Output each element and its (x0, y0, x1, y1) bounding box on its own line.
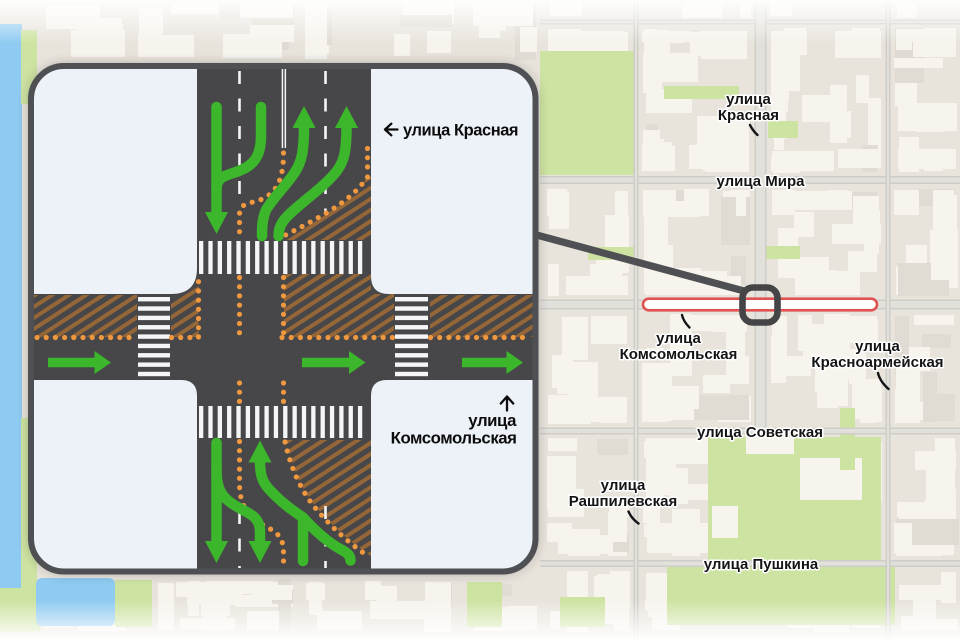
svg-text:улица: улица (726, 91, 771, 108)
svg-text:улица: улица (855, 338, 900, 355)
svg-text:улица Мира: улица Мира (716, 173, 805, 190)
svg-text:улица Пушкина: улица Пушкина (704, 556, 819, 573)
svg-text:улица: улица (601, 477, 646, 494)
svg-text:улица Советская: улица Советская (697, 424, 823, 441)
svg-text:улица Красная: улица Красная (403, 122, 518, 140)
svg-text:Рашпилевская: Рашпилевская (569, 493, 677, 510)
svg-text:Комсомольская: Комсомольская (620, 346, 738, 363)
svg-text:Красная: Красная (718, 107, 779, 124)
svg-text:Красноармейская: Красноармейская (811, 354, 943, 371)
svg-text:улица: улица (656, 330, 701, 347)
